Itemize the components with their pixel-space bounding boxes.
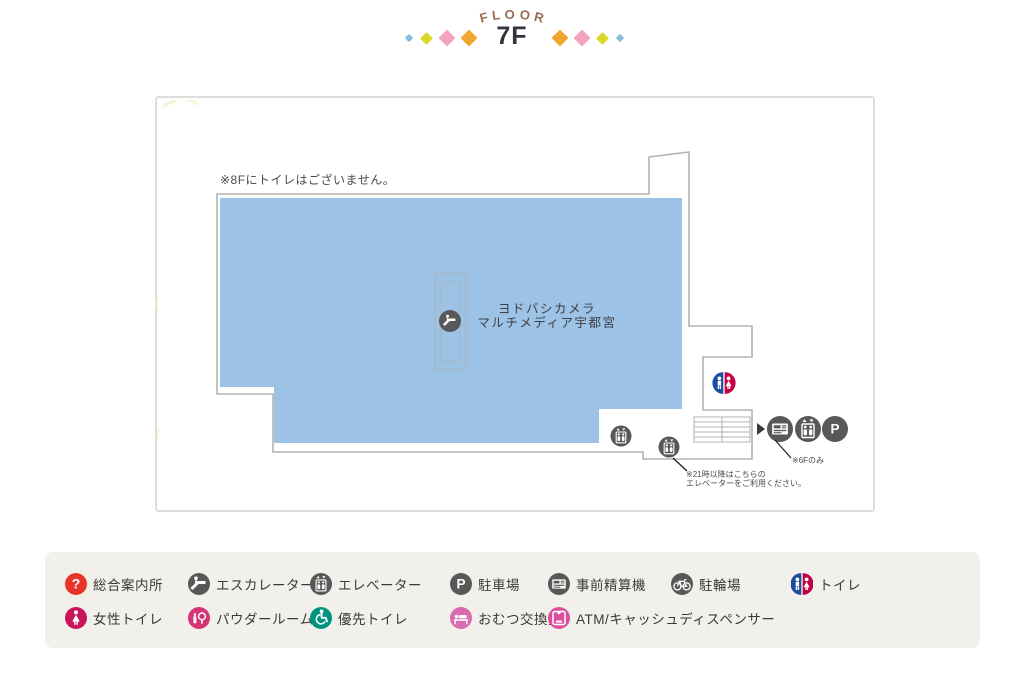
- floor-letter: O: [505, 7, 516, 22]
- female-toilet-icon: [65, 607, 87, 629]
- legend-item-information: 総合案内所: [65, 573, 163, 595]
- legend-item-elevator: エレベーター: [310, 573, 422, 595]
- priority-toilet-icon: [310, 607, 332, 629]
- pointer-triangle-icon: [757, 423, 765, 435]
- legend-item-payment-machine: 事前精算機: [548, 573, 646, 595]
- elevator-icon: [310, 573, 332, 595]
- diamond-icon: [596, 32, 609, 45]
- elevator-icon: [659, 437, 680, 458]
- leader-line: [673, 458, 687, 471]
- diamond-decoration-right: [554, 28, 623, 48]
- atm-icon: [548, 607, 570, 629]
- legend-item-female-toilet: 女性トイレ: [65, 607, 163, 629]
- legend-item-toilet: トイレ: [791, 573, 861, 595]
- legend-label: 事前精算機: [576, 574, 646, 594]
- stairs: [694, 417, 750, 442]
- legend-item-parking: 駐車場: [450, 573, 520, 595]
- legend-item-atm: ATM/キャッシュディスペンサー: [548, 607, 775, 629]
- diamond-icon: [439, 30, 456, 47]
- legend-label: 優先トイレ: [338, 608, 408, 628]
- toilet-icon: [712, 372, 735, 394]
- store-name-line1: ヨドバシカメラ: [498, 302, 596, 316]
- legend-item-bicycle-parking: 駐輪場: [671, 573, 741, 595]
- diamond-icon: [552, 30, 569, 47]
- info-icon: [65, 573, 87, 595]
- elevator-note-line1: ※21時以降はこちらの: [686, 469, 766, 479]
- legend-label: エスカレーター: [216, 574, 314, 594]
- bicycle-parking-icon: [671, 573, 693, 595]
- decorative-mark: [155, 428, 166, 440]
- legend-item-escalator: エスカレーター: [188, 573, 314, 595]
- legend-panel: 総合案内所 エスカレーター エレベーター 駐車場 事前精算機 駐輪場 トイレ 女…: [45, 552, 980, 648]
- elevator-icon: [795, 416, 821, 442]
- floor-map: ※8Fにトイレはございません。 ヨドバシカメラ マルチメディア宇都宮: [157, 98, 873, 510]
- elevator-icon: [611, 426, 632, 447]
- escalator-icon: [188, 573, 210, 595]
- diamond-icon: [420, 32, 433, 45]
- diamond-icon: [616, 34, 624, 42]
- powder-room-icon: [188, 607, 210, 629]
- floor-letter: L: [491, 7, 502, 23]
- decorative-mark: [155, 296, 166, 312]
- legend-label: 総合案内所: [93, 574, 163, 594]
- legend-label: 駐輪場: [699, 574, 741, 594]
- legend-label: エレベーター: [338, 574, 422, 594]
- legend-label: パウダールーム: [216, 608, 314, 628]
- map-note-8f: ※8Fにトイレはございません。: [220, 172, 395, 187]
- toilet-icon: [791, 573, 813, 595]
- legend-item-priority-toilet: 優先トイレ: [310, 607, 408, 629]
- diamond-icon: [574, 30, 591, 47]
- floor-letter: O: [519, 7, 532, 23]
- legend-label: 女性トイレ: [93, 608, 163, 628]
- payment-machine-icon: [548, 573, 570, 595]
- store-name-line2: マルチメディア宇都宮: [477, 315, 616, 330]
- legend-label: トイレ: [819, 574, 861, 594]
- parking-icon: [450, 573, 472, 595]
- diaper-changing-icon: [450, 607, 472, 629]
- diamond-icon: [461, 30, 478, 47]
- diamond-decoration-left: [406, 28, 475, 48]
- payment-note: ※6Fのみ: [792, 456, 824, 465]
- floor-number: 7F: [0, 22, 1024, 51]
- legend-item-powder-room: パウダールーム: [188, 607, 314, 629]
- parking-icon: [822, 416, 848, 442]
- elevator-note-line2: エレベーターをご利用ください。: [686, 478, 806, 488]
- leader-line: [775, 440, 791, 458]
- legend-item-diaper-changing: おむつ交換室: [450, 607, 562, 629]
- payment-machine-icon: [767, 416, 793, 442]
- diamond-icon: [405, 34, 413, 42]
- escalator-icon: [439, 310, 461, 332]
- legend-label: ATM/キャッシュディスペンサー: [576, 608, 775, 628]
- legend-label: 駐車場: [478, 574, 520, 594]
- floor-map-panel: ※8Fにトイレはございません。 ヨドバシカメラ マルチメディア宇都宮: [155, 96, 875, 512]
